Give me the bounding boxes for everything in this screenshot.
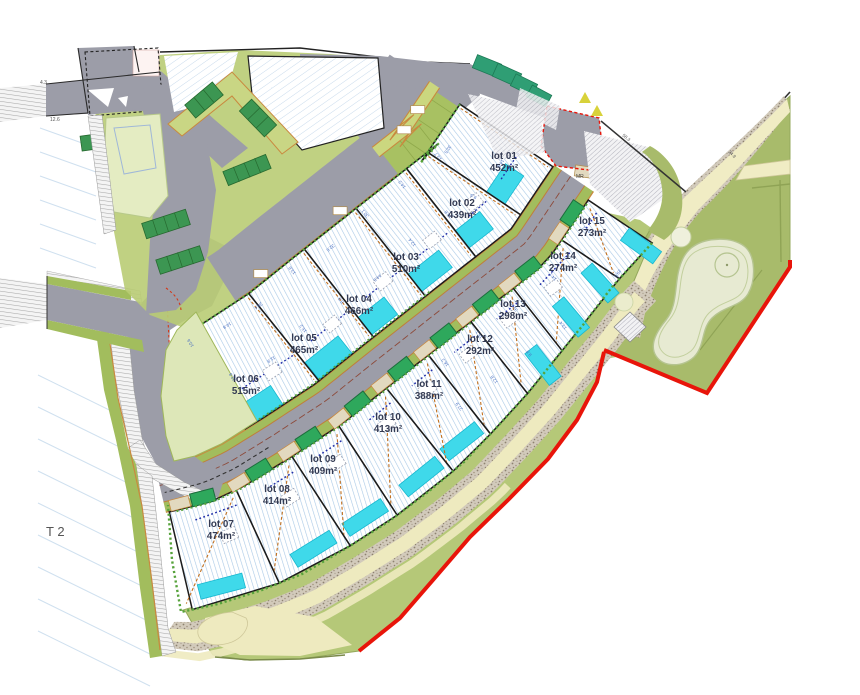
svg-text:lot 15: lot 15 xyxy=(579,216,605,227)
svg-text:lot 09: lot 09 xyxy=(310,454,336,465)
svg-text:298m²: 298m² xyxy=(499,311,528,322)
svg-text:413m²: 413m² xyxy=(374,424,403,435)
svg-text:lot 05: lot 05 xyxy=(291,333,317,344)
svg-text:414m²: 414m² xyxy=(263,496,292,507)
svg-text:388m²: 388m² xyxy=(415,391,444,402)
svg-text:466m²: 466m² xyxy=(345,306,374,317)
svg-text:T 2: T 2 xyxy=(46,524,65,539)
svg-text:lot 12: lot 12 xyxy=(467,334,493,345)
svg-text:lot 03: lot 03 xyxy=(393,252,419,263)
svg-text:273m²: 273m² xyxy=(578,228,607,239)
svg-text:4.3: 4.3 xyxy=(40,80,47,86)
svg-text:292m²: 292m² xyxy=(466,346,495,357)
svg-text:274m²: 274m² xyxy=(549,263,578,274)
svg-text:439m²: 439m² xyxy=(448,210,477,221)
svg-text:lot 07: lot 07 xyxy=(208,519,234,530)
svg-text:12.6: 12.6 xyxy=(50,117,60,123)
svg-text:515m²: 515m² xyxy=(232,386,261,397)
svg-text:lot 13: lot 13 xyxy=(500,299,526,310)
svg-text:lot 02: lot 02 xyxy=(449,198,475,209)
svg-text:lot 10: lot 10 xyxy=(375,412,401,423)
svg-text:lot 11: lot 11 xyxy=(416,379,442,390)
svg-text:lot 01: lot 01 xyxy=(491,151,517,162)
svg-text:474m²: 474m² xyxy=(207,531,236,542)
svg-text:lot 08: lot 08 xyxy=(264,484,290,495)
svg-text:409m²: 409m² xyxy=(309,466,338,477)
svg-text:MR: MR xyxy=(576,174,584,180)
svg-text:465m²: 465m² xyxy=(290,345,319,356)
svg-text:lot 14: lot 14 xyxy=(550,251,576,262)
svg-text:lot 04: lot 04 xyxy=(346,294,372,305)
svg-text:452m²: 452m² xyxy=(490,163,519,174)
svg-text:lot 06: lot 06 xyxy=(233,374,259,385)
svg-text:510m²: 510m² xyxy=(392,264,421,275)
